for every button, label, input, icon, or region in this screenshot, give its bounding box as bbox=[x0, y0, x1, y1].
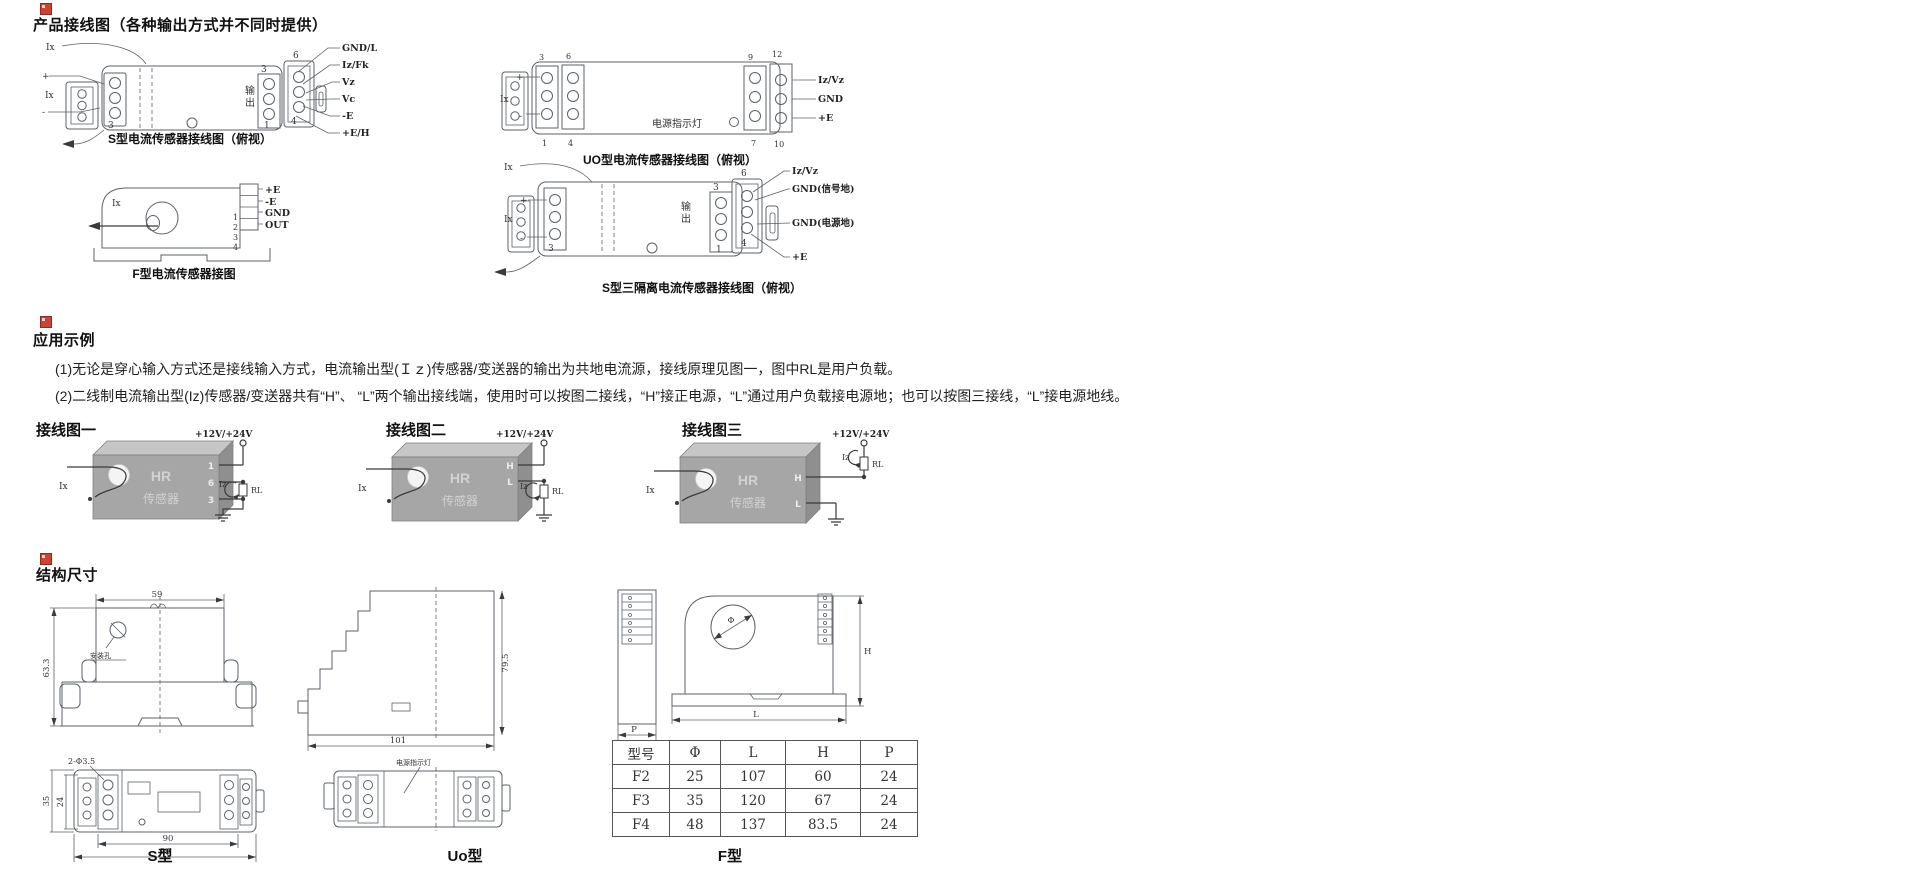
terminal-number: 4 bbox=[233, 243, 238, 252]
section1-title: 产品接线图（各种输出方式并不同时提供） bbox=[33, 14, 328, 35]
pin-label: GND(信号地) bbox=[792, 183, 855, 195]
uo-type-outline bbox=[298, 587, 510, 831]
chip-type-label: 传感器 bbox=[730, 495, 766, 510]
current-input-label: Ix bbox=[112, 199, 121, 209]
terminal-label: 3 bbox=[208, 496, 214, 506]
terminal-number: 3 bbox=[539, 53, 544, 62]
s-type-front-dimension-drawing: 59 63.3 安装孔 bbox=[38, 586, 293, 754]
section-bullet-icon bbox=[40, 316, 52, 328]
section2-title: 应用示例 bbox=[33, 329, 95, 350]
table-header-cell: P bbox=[861, 741, 918, 765]
table-cell: 83.5 bbox=[786, 813, 861, 837]
uo-type-dimension-drawing: 101 79.5 电源指示灯 bbox=[296, 585, 524, 840]
table-cell: F3 bbox=[613, 789, 670, 813]
table-cell: 120 bbox=[721, 789, 786, 813]
s-type-caption: S型 bbox=[120, 845, 200, 866]
output-label-char: 出 bbox=[681, 212, 691, 225]
pin-label: Vc bbox=[341, 94, 355, 105]
diagram-caption: S型电流传感器接线图（俯视） bbox=[108, 131, 272, 146]
terminal-label: H bbox=[794, 474, 802, 484]
pin-label: +E bbox=[792, 252, 807, 263]
pin-label: Vz bbox=[341, 77, 355, 88]
f-type-caption: F型 bbox=[690, 845, 770, 866]
table-cell: 60 bbox=[786, 765, 861, 789]
diagram-caption: F型电流传感器接图 bbox=[132, 266, 235, 281]
current-input-label: Ix bbox=[500, 95, 509, 105]
pin-label: OUT bbox=[265, 220, 289, 231]
pin-label: Iz/Fk bbox=[342, 60, 369, 71]
pin-label: -E bbox=[265, 197, 276, 208]
minus-label: - bbox=[42, 108, 45, 118]
terminal-number: 9 bbox=[748, 53, 753, 62]
table-cell: 67 bbox=[786, 789, 861, 813]
application-paragraph-2: (2)二线制电流输出型(Iz)传感器/变送器共有“H”、 “L”两个输出接线端，… bbox=[55, 386, 1128, 406]
s-type-isolated-wiring-diagram: Ix + Ix - 3 输 出 3 1 6 4 Iz/Vz GND(信号地) G… bbox=[420, 148, 860, 300]
chip-type-label: 传感器 bbox=[442, 493, 478, 508]
output-label-char: 输 bbox=[245, 84, 255, 97]
terminal-number: 6 bbox=[741, 169, 747, 179]
supply-voltage-label: +12V/+24V bbox=[195, 430, 253, 440]
minus-label: - bbox=[520, 234, 523, 244]
h-dimension-label: H bbox=[864, 647, 871, 657]
table-row: F4 48 137 83.5 24 bbox=[613, 813, 918, 837]
plus-label: + bbox=[42, 72, 50, 82]
supply-voltage-label: +12V/+24V bbox=[496, 430, 554, 440]
pin-label: +E bbox=[265, 185, 280, 196]
supply-voltage-label: +12V/+24V bbox=[832, 430, 890, 440]
application-paragraph-1: (1)无论是穿心输入方式还是接线输入方式，电流输出型(Ｉｚ)传感器/变送器的输出… bbox=[55, 359, 901, 379]
terminal-label: 1 bbox=[208, 462, 214, 472]
terminal-number: 3 bbox=[261, 65, 267, 75]
table-cell: F2 bbox=[613, 765, 670, 789]
width-dimension: 59 bbox=[152, 590, 163, 600]
pin-label: Iz/Vz bbox=[818, 75, 845, 86]
terminal-number: 1 bbox=[233, 213, 238, 222]
current-input-label: Ix bbox=[504, 163, 513, 173]
height-dimension: 63.3 bbox=[42, 659, 52, 678]
pin-label: GND/L bbox=[342, 43, 378, 54]
terminal-number: 4 bbox=[291, 117, 297, 127]
table-cell: 24 bbox=[861, 789, 918, 813]
terminal-number: 12 bbox=[772, 50, 782, 59]
table-cell: F4 bbox=[613, 813, 670, 837]
table-cell: 48 bbox=[670, 813, 721, 837]
section3-title: 结构尺寸 bbox=[36, 564, 98, 585]
pin-label: +E bbox=[818, 113, 833, 124]
table-row: F2 25 107 60 24 bbox=[613, 765, 918, 789]
current-input-label: Ix bbox=[646, 486, 655, 496]
output-label-char: 出 bbox=[245, 96, 255, 109]
pin-label: GND bbox=[265, 208, 290, 219]
terminal-number: 3 bbox=[713, 183, 719, 193]
table-header-cell: H bbox=[786, 741, 861, 765]
chip-brand-label: HR bbox=[151, 468, 171, 484]
pin-label: GND(电源地) bbox=[792, 217, 855, 229]
current-input-label: Ix bbox=[59, 482, 68, 492]
datasheet-page: 产品接线图（各种输出方式并不同时提供） bbox=[0, 0, 1920, 895]
f-type-dimension-table: 型号 Φ L H P F2 25 107 60 24 F3 35 120 67 … bbox=[612, 740, 918, 837]
table-cell: 24 bbox=[861, 765, 918, 789]
plus-label: + bbox=[516, 73, 524, 83]
terminal-number: 7 bbox=[751, 139, 756, 148]
hole-dimension: 2-Φ3.5 bbox=[68, 757, 95, 766]
height-dimension: 79.5 bbox=[501, 654, 511, 673]
f-type-module-drawing bbox=[88, 184, 270, 261]
mounting-hole-label: 安装孔 bbox=[90, 651, 111, 660]
current-input-label: Ix bbox=[504, 215, 513, 225]
f-type-dimension-drawing: P Φ H L bbox=[600, 582, 900, 750]
terminal-label: L bbox=[507, 478, 513, 488]
pin-label: -E bbox=[342, 111, 353, 122]
length-dimension: 101 bbox=[390, 736, 406, 746]
chip-brand-label: HR bbox=[738, 472, 758, 488]
s-type-front-outline bbox=[50, 594, 256, 734]
wiring-figure-2: Ix HR 传感器 H L +12V/+24V Iz RL bbox=[340, 427, 585, 552]
table-cell: 137 bbox=[721, 813, 786, 837]
table-header-row: 型号 Φ L H P bbox=[613, 741, 918, 765]
table-header-cell: L bbox=[721, 741, 786, 765]
output-current-label: Iz bbox=[219, 480, 226, 489]
l-dimension-label: L bbox=[753, 710, 759, 720]
pin-label: GND bbox=[818, 94, 843, 105]
terminal-number: 2 bbox=[233, 223, 238, 232]
table-row: F3 35 120 67 24 bbox=[613, 789, 918, 813]
power-led-label: 电源指示灯 bbox=[652, 117, 702, 130]
chip-brand-label: HR bbox=[450, 470, 470, 486]
s-type-wiring-diagram: Ix + Ix - 3 输 出 3 1 6 4 GND/L Iz/Fk Vz V… bbox=[40, 36, 400, 152]
terminal-number: 1 bbox=[542, 139, 547, 148]
table-header-cell: Φ bbox=[670, 741, 721, 765]
chip-type-label: 传感器 bbox=[143, 491, 179, 506]
terminal-number: 4 bbox=[568, 139, 573, 148]
table-cell: 35 bbox=[670, 789, 721, 813]
output-current-label: Iz bbox=[842, 453, 849, 462]
terminal-number: 3 bbox=[108, 121, 114, 131]
minus-label: - bbox=[519, 112, 522, 122]
p-dimension-label: P bbox=[631, 725, 637, 735]
current-input-label: Ix bbox=[45, 91, 54, 101]
table-cell: 25 bbox=[670, 765, 721, 789]
depth-dimension-inner: 24 bbox=[56, 797, 65, 807]
load-resistor-label: RL bbox=[251, 486, 263, 495]
terminal-number: 6 bbox=[293, 51, 299, 61]
uo-type-caption: Uo型 bbox=[420, 845, 510, 866]
f-type-outline bbox=[618, 590, 864, 740]
pin-label: Iz/Vz bbox=[792, 166, 819, 177]
current-input-label: Ix bbox=[358, 484, 367, 494]
terminal-label: 6 bbox=[208, 479, 214, 489]
plus-label: + bbox=[520, 196, 528, 206]
length-dimension-inner: 90 bbox=[163, 834, 174, 844]
depth-dimension-outer: 35 bbox=[42, 796, 51, 806]
load-resistor-label: RL bbox=[872, 460, 884, 469]
terminal-number: 1 bbox=[716, 245, 722, 255]
output-label-char: 输 bbox=[681, 200, 691, 213]
terminal-number: 3 bbox=[233, 233, 238, 242]
s-type-isolated-module-drawing bbox=[494, 164, 790, 276]
diagram-caption: S型三隔离电流传感器接线图（俯视） bbox=[602, 280, 802, 295]
pin-label: +E/H bbox=[342, 128, 370, 139]
current-input-label: Ix bbox=[46, 43, 55, 53]
load-resistor-label: RL bbox=[552, 487, 564, 496]
output-current-label: Iz bbox=[520, 482, 527, 491]
terminal-number: 4 bbox=[741, 239, 747, 249]
terminal-number: 6 bbox=[566, 52, 571, 61]
terminal-number: 3 bbox=[548, 244, 554, 254]
wiring-figure-1: Ix HR 传感器 1 6 3 +12V/+24V Iz RL bbox=[35, 427, 290, 552]
power-led-label: 电源指示灯 bbox=[396, 758, 431, 767]
table-header-cell: 型号 bbox=[613, 741, 670, 765]
terminal-label: L bbox=[795, 500, 801, 510]
wiring-figure-3: Ix HR 传感器 H L +12V/+24V Iz RL bbox=[600, 427, 895, 557]
f-type-wiring-diagram: Ix +E -E GND OUT 1 2 3 4 F型电流传感器接图 bbox=[72, 148, 322, 286]
terminal-label: H bbox=[506, 462, 514, 472]
table-cell: 24 bbox=[861, 813, 918, 837]
terminal-number: 1 bbox=[264, 121, 270, 131]
table-cell: 107 bbox=[721, 765, 786, 789]
phi-dimension-label: Φ bbox=[728, 616, 735, 626]
